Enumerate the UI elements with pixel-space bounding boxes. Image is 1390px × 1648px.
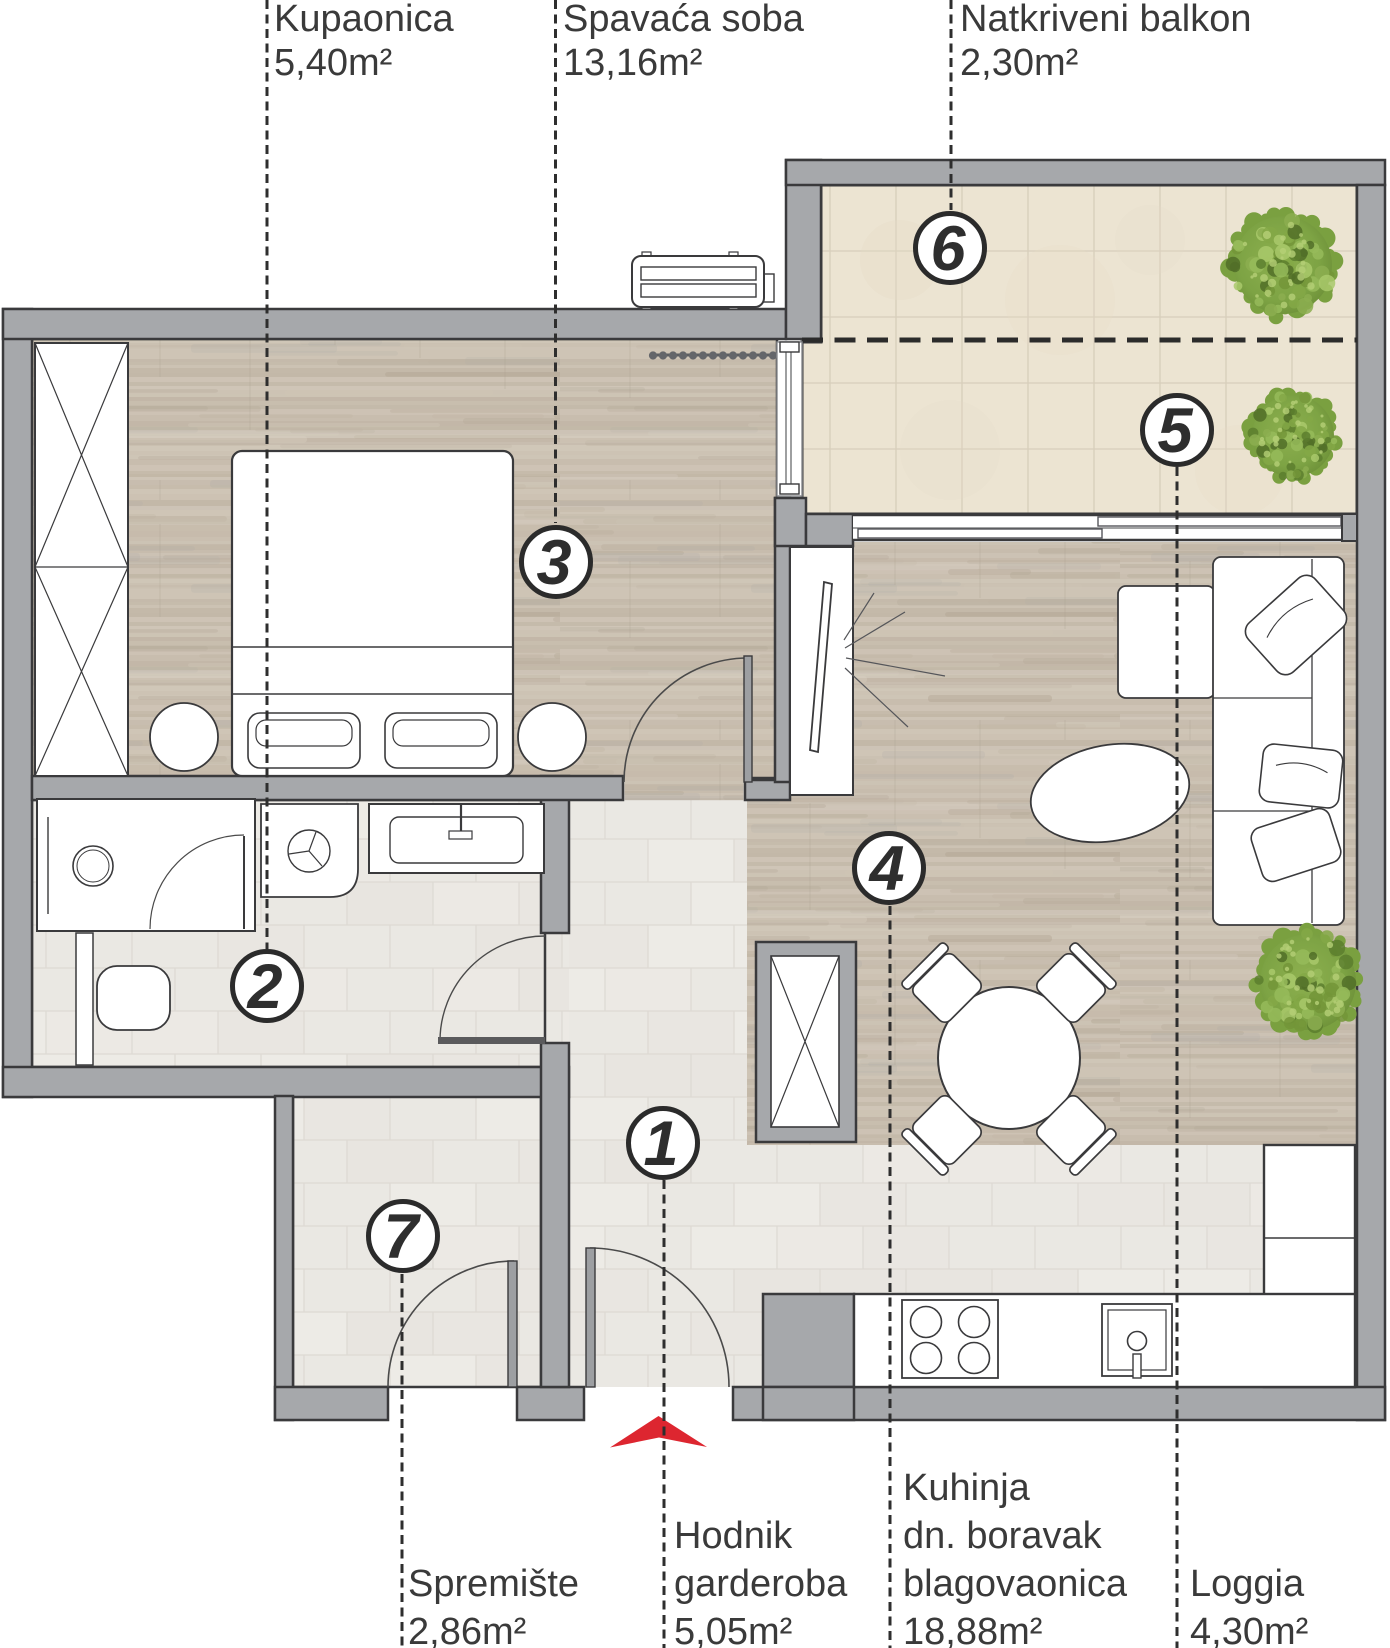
svg-text:garderoba: garderoba — [674, 1563, 848, 1605]
svg-text:2: 2 — [246, 952, 282, 1022]
svg-text:Kuhinja: Kuhinja — [903, 1467, 1031, 1509]
svg-text:Natkriveni balkon: Natkriveni balkon — [960, 0, 1251, 40]
svg-text:3: 3 — [536, 528, 571, 598]
svg-text:4,30m²: 4,30m² — [1190, 1611, 1308, 1648]
svg-text:Loggia: Loggia — [1190, 1563, 1305, 1605]
svg-text:Spavaća soba: Spavaća soba — [563, 0, 805, 40]
svg-text:4: 4 — [867, 834, 904, 904]
svg-text:5,05m²: 5,05m² — [674, 1611, 792, 1648]
svg-text:13,16m²: 13,16m² — [563, 42, 702, 84]
svg-text:2,30m²: 2,30m² — [960, 42, 1078, 84]
svg-text:Hodnik: Hodnik — [674, 1515, 793, 1557]
svg-text:Kupaonica: Kupaonica — [274, 0, 454, 40]
svg-text:dn. boravak: dn. boravak — [903, 1515, 1103, 1557]
svg-text:5,40m²: 5,40m² — [274, 42, 392, 84]
svg-text:Spremište: Spremište — [408, 1563, 579, 1605]
svg-text:5: 5 — [1157, 396, 1193, 466]
svg-text:2,86m²: 2,86m² — [408, 1611, 526, 1648]
svg-text:1: 1 — [643, 1109, 678, 1179]
svg-text:6: 6 — [930, 214, 966, 284]
svg-text:7: 7 — [383, 1202, 421, 1272]
svg-text:blagovaonica: blagovaonica — [903, 1563, 1128, 1605]
svg-text:18,88m²: 18,88m² — [903, 1611, 1042, 1648]
